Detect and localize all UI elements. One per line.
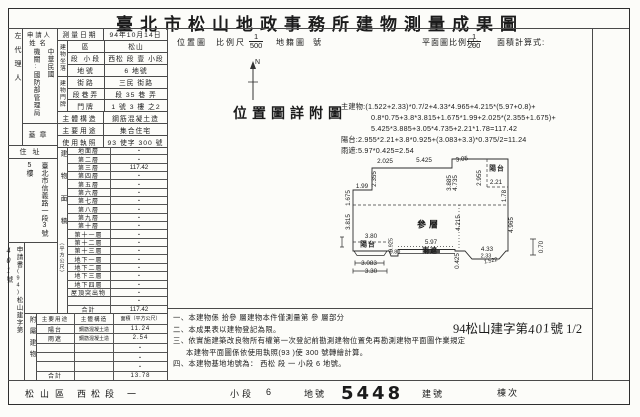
application-number-suffix: 號 — [5, 276, 12, 284]
application-number-prefix: 申請書 — [15, 246, 22, 269]
formula-line: 5.425*3.885+3.05*4.735+2.21*1.78=117.42 — [341, 123, 556, 134]
area-table-side-label: 建物面積（平方公尺） — [57, 150, 67, 310]
footer-section: 西松 — [77, 387, 105, 400]
floor-label: 地下四層 — [67, 281, 111, 288]
formula-line: 陽台:2.955*2.21+3.8*0.925+(3.083+3.3)*0.37… — [341, 134, 556, 145]
footer-unit-label: 棟次 — [497, 386, 519, 399]
attached-structure — [75, 362, 114, 370]
attached-use — [36, 344, 75, 352]
seal-label: 蓋章 — [22, 123, 57, 145]
table-row: 第四層・ — [67, 171, 167, 179]
floor-area: ・ — [111, 264, 167, 271]
applicant-name: 中華民國 機關:國防部管理局 — [24, 48, 56, 122]
floor-area-table: 地面層・ 第二層・ 第三層117.42 第四層・ 第五層・ 第六層・ 第七層・ … — [67, 147, 167, 313]
usage-value: 集合住宅 — [104, 123, 167, 135]
applicant-name-label: 姓名 — [22, 38, 57, 47]
floor-label: 第二層 — [67, 155, 111, 162]
table-row: 地下三層・ — [67, 271, 167, 279]
attached-area: ・ — [114, 362, 167, 370]
street-value: 三民 街路 — [105, 76, 167, 88]
table-row: 主體構造 鋼筋混凝土造 — [57, 111, 167, 123]
usage-label: 主要用途 — [57, 123, 104, 135]
table-row: 第二層・ — [67, 154, 167, 162]
table-row: ・ — [67, 296, 167, 304]
dimension-label: 0.70 — [539, 241, 545, 253]
floor-area: 117.42 — [111, 306, 167, 313]
note-line: 一、本建物係 拾參 層建物本件僅測量第 參 層部分 — [173, 312, 465, 324]
floor-label — [67, 297, 111, 304]
document-number-suffix: 號 1/2 — [551, 322, 583, 336]
attached-use — [36, 362, 75, 370]
footer-subsection: 一 — [127, 387, 136, 400]
floor-label: 第六層 — [67, 189, 111, 196]
table-row: 雨遮 鋼筋混凝土造 2.54 — [36, 333, 167, 342]
address-line2: 5樓 — [22, 162, 37, 240]
floor-label: 屋頂突出物 — [67, 289, 111, 296]
cadastral-map-label: 地籍圖 — [276, 37, 306, 48]
canopy-label: 雨遮 — [422, 249, 438, 256]
note-line: 三、依實施建築改良物所有權第一次登記前勘測建物位置免再勘測建物平面圖作業規定 — [173, 335, 465, 347]
table-row: 第十三層・ — [67, 246, 167, 254]
survey-date-label: 測量日期 — [57, 28, 104, 40]
table-row: 使用執照 93 使字 300 號 — [57, 135, 167, 147]
table-row: 主要用途 集合住宅 — [57, 123, 167, 135]
footer-building-label: 建號 — [422, 387, 444, 400]
table-row: 區 松山 — [57, 40, 167, 52]
attached-header-use: 主要用途 — [36, 313, 75, 324]
location-map-note: 位置圖詳附圖 — [233, 103, 347, 123]
table-row: ・ — [36, 352, 167, 361]
dimension-label: 1.78 — [502, 190, 508, 202]
floor-label: 第八層 — [67, 205, 111, 212]
dimension-label: 4.215 — [456, 215, 462, 231]
land-no-value: 6 地號 — [105, 64, 167, 76]
footer-land-label: 地號 — [304, 387, 326, 400]
table-header-row: 主要用途 主體構造 面積（平方公尺） — [36, 313, 167, 324]
attached-structure — [75, 372, 114, 380]
district-value: 松山 — [105, 40, 167, 52]
door-plate-label: 門牌 — [68, 99, 105, 111]
table-row: 地號 6 地號 — [57, 64, 167, 76]
floor-area: ・ — [111, 289, 167, 296]
floor-label: 第五層 — [67, 180, 111, 187]
dimension-label: 0.80 — [390, 250, 401, 256]
table-row: 地面層・ — [67, 147, 167, 154]
attached-area: 13.78 — [114, 372, 167, 380]
floor-area: ・ — [111, 297, 167, 304]
floor-area: ・ — [111, 180, 167, 187]
section-value: 西松 段 壹 小段 — [105, 52, 167, 64]
table-row: 地下一層・ — [67, 254, 167, 262]
table-row: 段巷弄 段 35 巷 弄 — [57, 88, 167, 100]
table-row: 第十二層・ — [67, 238, 167, 246]
floor-label: 第七層 — [67, 197, 111, 204]
application-number: 申請書(94)松山建字第401號 — [9, 246, 23, 354]
table-row: 街路 三民 街路 — [57, 76, 167, 88]
dimension-label: 1.675 — [346, 190, 352, 206]
lane-value: 段 35 巷 弄 — [105, 88, 167, 100]
floor-name-label: 參層 — [417, 221, 441, 230]
floor-area: ・ — [111, 255, 167, 262]
table-row: 第九層・ — [67, 213, 167, 221]
plan-scale: 1 200 — [467, 33, 481, 50]
area-side-sub: （平方公尺） — [59, 240, 66, 276]
attached-header-structure: 主體構造 — [75, 313, 114, 324]
dimension-label: 5.97 — [425, 240, 437, 246]
floor-area: ・ — [111, 247, 167, 254]
main-info-table: 測量日期 94年10月14日 區 松山 段 小段 西松 段 壹 小段 地號 6 … — [57, 28, 167, 147]
floor-label: 第十三層 — [67, 247, 111, 254]
structure-value: 鋼筋混凝土造 — [104, 111, 167, 123]
agent-label: 左代理人 — [9, 32, 22, 107]
cadastral-no-label: 號 — [313, 37, 323, 48]
floor-label: 地面層 — [67, 147, 111, 154]
attached-header-area: 面積（平方公尺） — [114, 313, 167, 324]
attached-use — [36, 353, 75, 361]
plan-scale-denominator: 200 — [467, 42, 481, 50]
structure-label: 主體構造 — [57, 111, 104, 123]
lane-label: 段巷弄 — [68, 88, 105, 100]
floor-area: ・ — [111, 205, 167, 212]
table-row: 第十一層・ — [67, 229, 167, 237]
floor-label: 第十層 — [67, 222, 111, 229]
attached-structure — [75, 344, 114, 352]
dimension-label: 5.425 — [416, 158, 432, 164]
attached-side-label: 附屬建物 — [25, 316, 36, 377]
dimension-label: 4.965 — [509, 217, 515, 233]
attached-area: 11.24 — [114, 325, 167, 333]
table-row: 第三層117.42 — [67, 163, 167, 171]
area-side-text: 建物面積 — [57, 150, 67, 240]
formula-line: 0.8*0.75+3.8*3.815+1.675*1.99+2.025*(2.3… — [341, 112, 556, 123]
footer-subsection-unit: 小段 — [230, 387, 254, 400]
table-row: 陽台 鋼筋混凝土造 11.24 — [36, 324, 167, 333]
floor-area: ・ — [111, 172, 167, 179]
attached-structure: 鋼筋混凝土造 — [75, 334, 114, 342]
land-no-label: 地號 — [68, 64, 105, 76]
dimension-label: 2.21 — [490, 180, 502, 186]
application-number-year: (94) — [15, 269, 21, 297]
floor-label: 合計 — [67, 306, 111, 313]
floor-area: ・ — [111, 272, 167, 279]
note-line: 二、本成果表以建物登記為限。 — [173, 324, 465, 336]
dimension-label: 2.025 — [377, 159, 393, 165]
table-row: 第八層・ — [67, 204, 167, 212]
table-row: 屋頂突出物・ — [67, 288, 167, 296]
grid-line — [167, 28, 168, 380]
address-line1: 臺北市信義路一段3號 — [37, 162, 52, 240]
grid-line — [8, 158, 57, 159]
table-row: 測量日期 94年10月14日 — [57, 28, 167, 40]
dimension-label: 4.33 — [481, 247, 493, 253]
floor-area: 117.42 — [111, 164, 167, 171]
footer-district: 松山區 — [25, 387, 70, 400]
district-label: 區 — [68, 40, 105, 52]
floor-area: ・ — [111, 155, 167, 162]
application-number-value: 401 — [4, 246, 13, 276]
door-plate-value: 1 號 3 樓 之2 — [105, 99, 167, 111]
scale-denominator: 500 — [249, 42, 263, 50]
grid-line — [8, 242, 57, 243]
area-calculation: 主建物:(1.522+2.33)*0.7/2+4.33*4.965+4.215*… — [341, 101, 556, 156]
floor-label: 第四層 — [67, 172, 111, 179]
dimension-label: 3.80 — [365, 234, 377, 240]
table-row: 地下四層・ — [67, 280, 167, 288]
floor-label: 第九層 — [67, 214, 111, 221]
scale-label: 比例尺 — [216, 37, 246, 48]
dimension-label: 2.955 — [477, 170, 483, 186]
grid-line — [167, 308, 592, 309]
floor-label: 地下一層 — [67, 255, 111, 262]
attached-structure — [75, 353, 114, 361]
document-number: 94松山建字第401號 1/2 — [453, 318, 582, 337]
location-map-label: 位置圖 — [177, 37, 207, 48]
floor-plan: 2.025 5.425 3.05 2.355 1.99 1.675 3.815 … — [340, 150, 560, 290]
grid-line — [592, 28, 593, 380]
address-label: 住址 — [8, 147, 57, 157]
attached-use: 雨遮 — [36, 334, 75, 342]
building-location-section-label: 建物坐落 — [57, 40, 67, 76]
floor-area: ・ — [111, 147, 167, 154]
section-label: 段 小段 — [68, 52, 105, 64]
table-row: 門牌 1 號 3 樓 之2 — [57, 99, 167, 111]
formula-line: 主建物:(1.522+2.33)*0.7/2+4.33*4.965+4.215*… — [341, 101, 556, 112]
footer-section-unit: 段 — [105, 387, 114, 400]
attached-structures-table: 主要用途 主體構造 面積（平方公尺） 陽台 鋼筋混凝土造 11.24 雨遮 鋼筋… — [36, 313, 167, 380]
floor-area: ・ — [111, 222, 167, 229]
table-row: 第十層・ — [67, 221, 167, 229]
floor-area: ・ — [111, 189, 167, 196]
address-value: 臺北市信義路一段3號 5樓 — [12, 162, 52, 240]
attached-structure: 鋼筋混凝土造 — [75, 325, 114, 333]
attached-use: 陽台 — [36, 325, 75, 333]
applicant-name-line2: 機關:國防部管理局 — [28, 48, 42, 122]
floor-label: 第十二層 — [67, 239, 111, 246]
floor-label: 地下三層 — [67, 272, 111, 279]
calc-label: 面積計算式: — [497, 37, 545, 48]
table-row: ・ — [36, 361, 167, 370]
application-number-body: 松山建字第 — [15, 297, 22, 335]
dimension-label: 3.083 — [361, 261, 377, 267]
floor-area: ・ — [111, 230, 167, 237]
floor-label: 地下二層 — [67, 264, 111, 271]
floor-area: ・ — [111, 239, 167, 246]
footer-land-no: 6 — [266, 387, 271, 397]
notes: 一、本建物係 拾參 層建物本件僅測量第 參 層部分 二、本成果表以建物登記為限。… — [173, 312, 465, 370]
survey-document: 臺北市松山地政事務所建物測量成果圖 左代理人 申請人 姓名 中華民國 機關:國防… — [0, 0, 640, 417]
note-line: 四、本建物基地地號為： 西松 段 一 小段 6 地號。 — [173, 358, 465, 370]
balcony-label: 陽台 — [360, 243, 376, 250]
table-row: 第七層・ — [67, 196, 167, 204]
dimension-label: 3.30 — [365, 269, 377, 275]
floor-area: ・ — [111, 281, 167, 288]
attached-area: ・ — [114, 344, 167, 352]
dimension-label: 0.425 — [455, 253, 461, 269]
street-label: 街路 — [68, 76, 105, 88]
table-row: 段 小段 西松 段 壹 小段 — [57, 52, 167, 64]
attached-area: 2.54 — [114, 334, 167, 342]
floor-label: 第十一層 — [67, 230, 111, 237]
floor-area: ・ — [111, 197, 167, 204]
document-number-prefix: 94松山建字第 — [453, 322, 528, 336]
footer-bar: 松山區 西松 段 一 小段 6 地號 5448 建號 棟次 — [8, 380, 629, 404]
dimension-label: 1.99 — [356, 184, 368, 190]
attached-area: ・ — [114, 353, 167, 361]
table-row: 第五層・ — [67, 179, 167, 187]
attached-use: 合計 — [36, 372, 75, 380]
building-door-section-label: 建物門牌 — [57, 76, 67, 112]
table-row: 地下二層・ — [67, 263, 167, 271]
dimension-label: 2.355 — [372, 171, 378, 187]
floor-area: ・ — [111, 214, 167, 221]
dimension-label: 4.735 — [453, 175, 459, 191]
table-row: 合計117.42 — [67, 305, 167, 313]
survey-date-value: 94年10月14日 — [104, 28, 167, 40]
north-arrow-icon — [244, 60, 264, 102]
grid-line — [8, 145, 57, 146]
table-row: ・ — [36, 343, 167, 352]
note-line: 本建物平面圖係依使用執照(93 )使 300 號轉繪計算。 — [173, 347, 465, 359]
table-row: 合計 13.78 — [36, 371, 167, 380]
footer-building-no: 5448 — [341, 383, 403, 404]
balcony-label: 陽台 — [489, 167, 505, 174]
dimension-label: 3.815 — [346, 214, 352, 230]
floor-label: 第三層 — [67, 164, 111, 171]
table-row: 第六層・ — [67, 188, 167, 196]
location-map-scale: 1 500 — [249, 33, 263, 50]
applicant-name-line1: 中華民國 — [42, 48, 56, 122]
document-number-value: 401 — [527, 320, 551, 338]
